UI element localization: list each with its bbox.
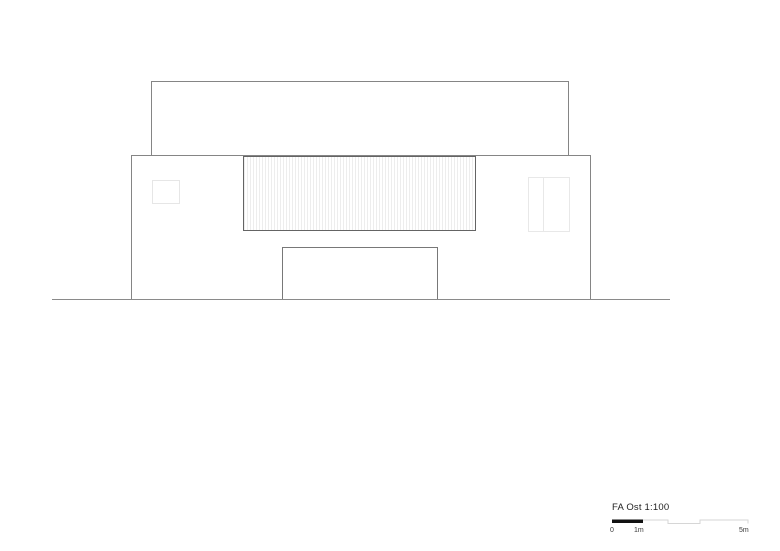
scale-bar-filled-segment <box>612 520 643 524</box>
upper-volume-outline <box>151 81 569 155</box>
right-window-frame <box>528 177 570 232</box>
scale-tick-5m: 5m <box>739 527 749 534</box>
elevation-drawing: FA Ost 1:100 0 1m 5m <box>0 0 780 551</box>
scale-bar-step-line <box>643 520 748 524</box>
scale-tick-1m: 1m <box>634 527 644 534</box>
slatted-window-band <box>243 156 476 231</box>
drawing-title: FA Ost 1:100 <box>612 502 669 513</box>
right-window-divider <box>543 178 544 231</box>
scale-bar <box>612 519 752 527</box>
entrance-door-outline <box>282 247 438 300</box>
ground-line <box>52 299 670 300</box>
left-window-frame <box>152 180 180 204</box>
scale-tick-0: 0 <box>610 527 614 534</box>
